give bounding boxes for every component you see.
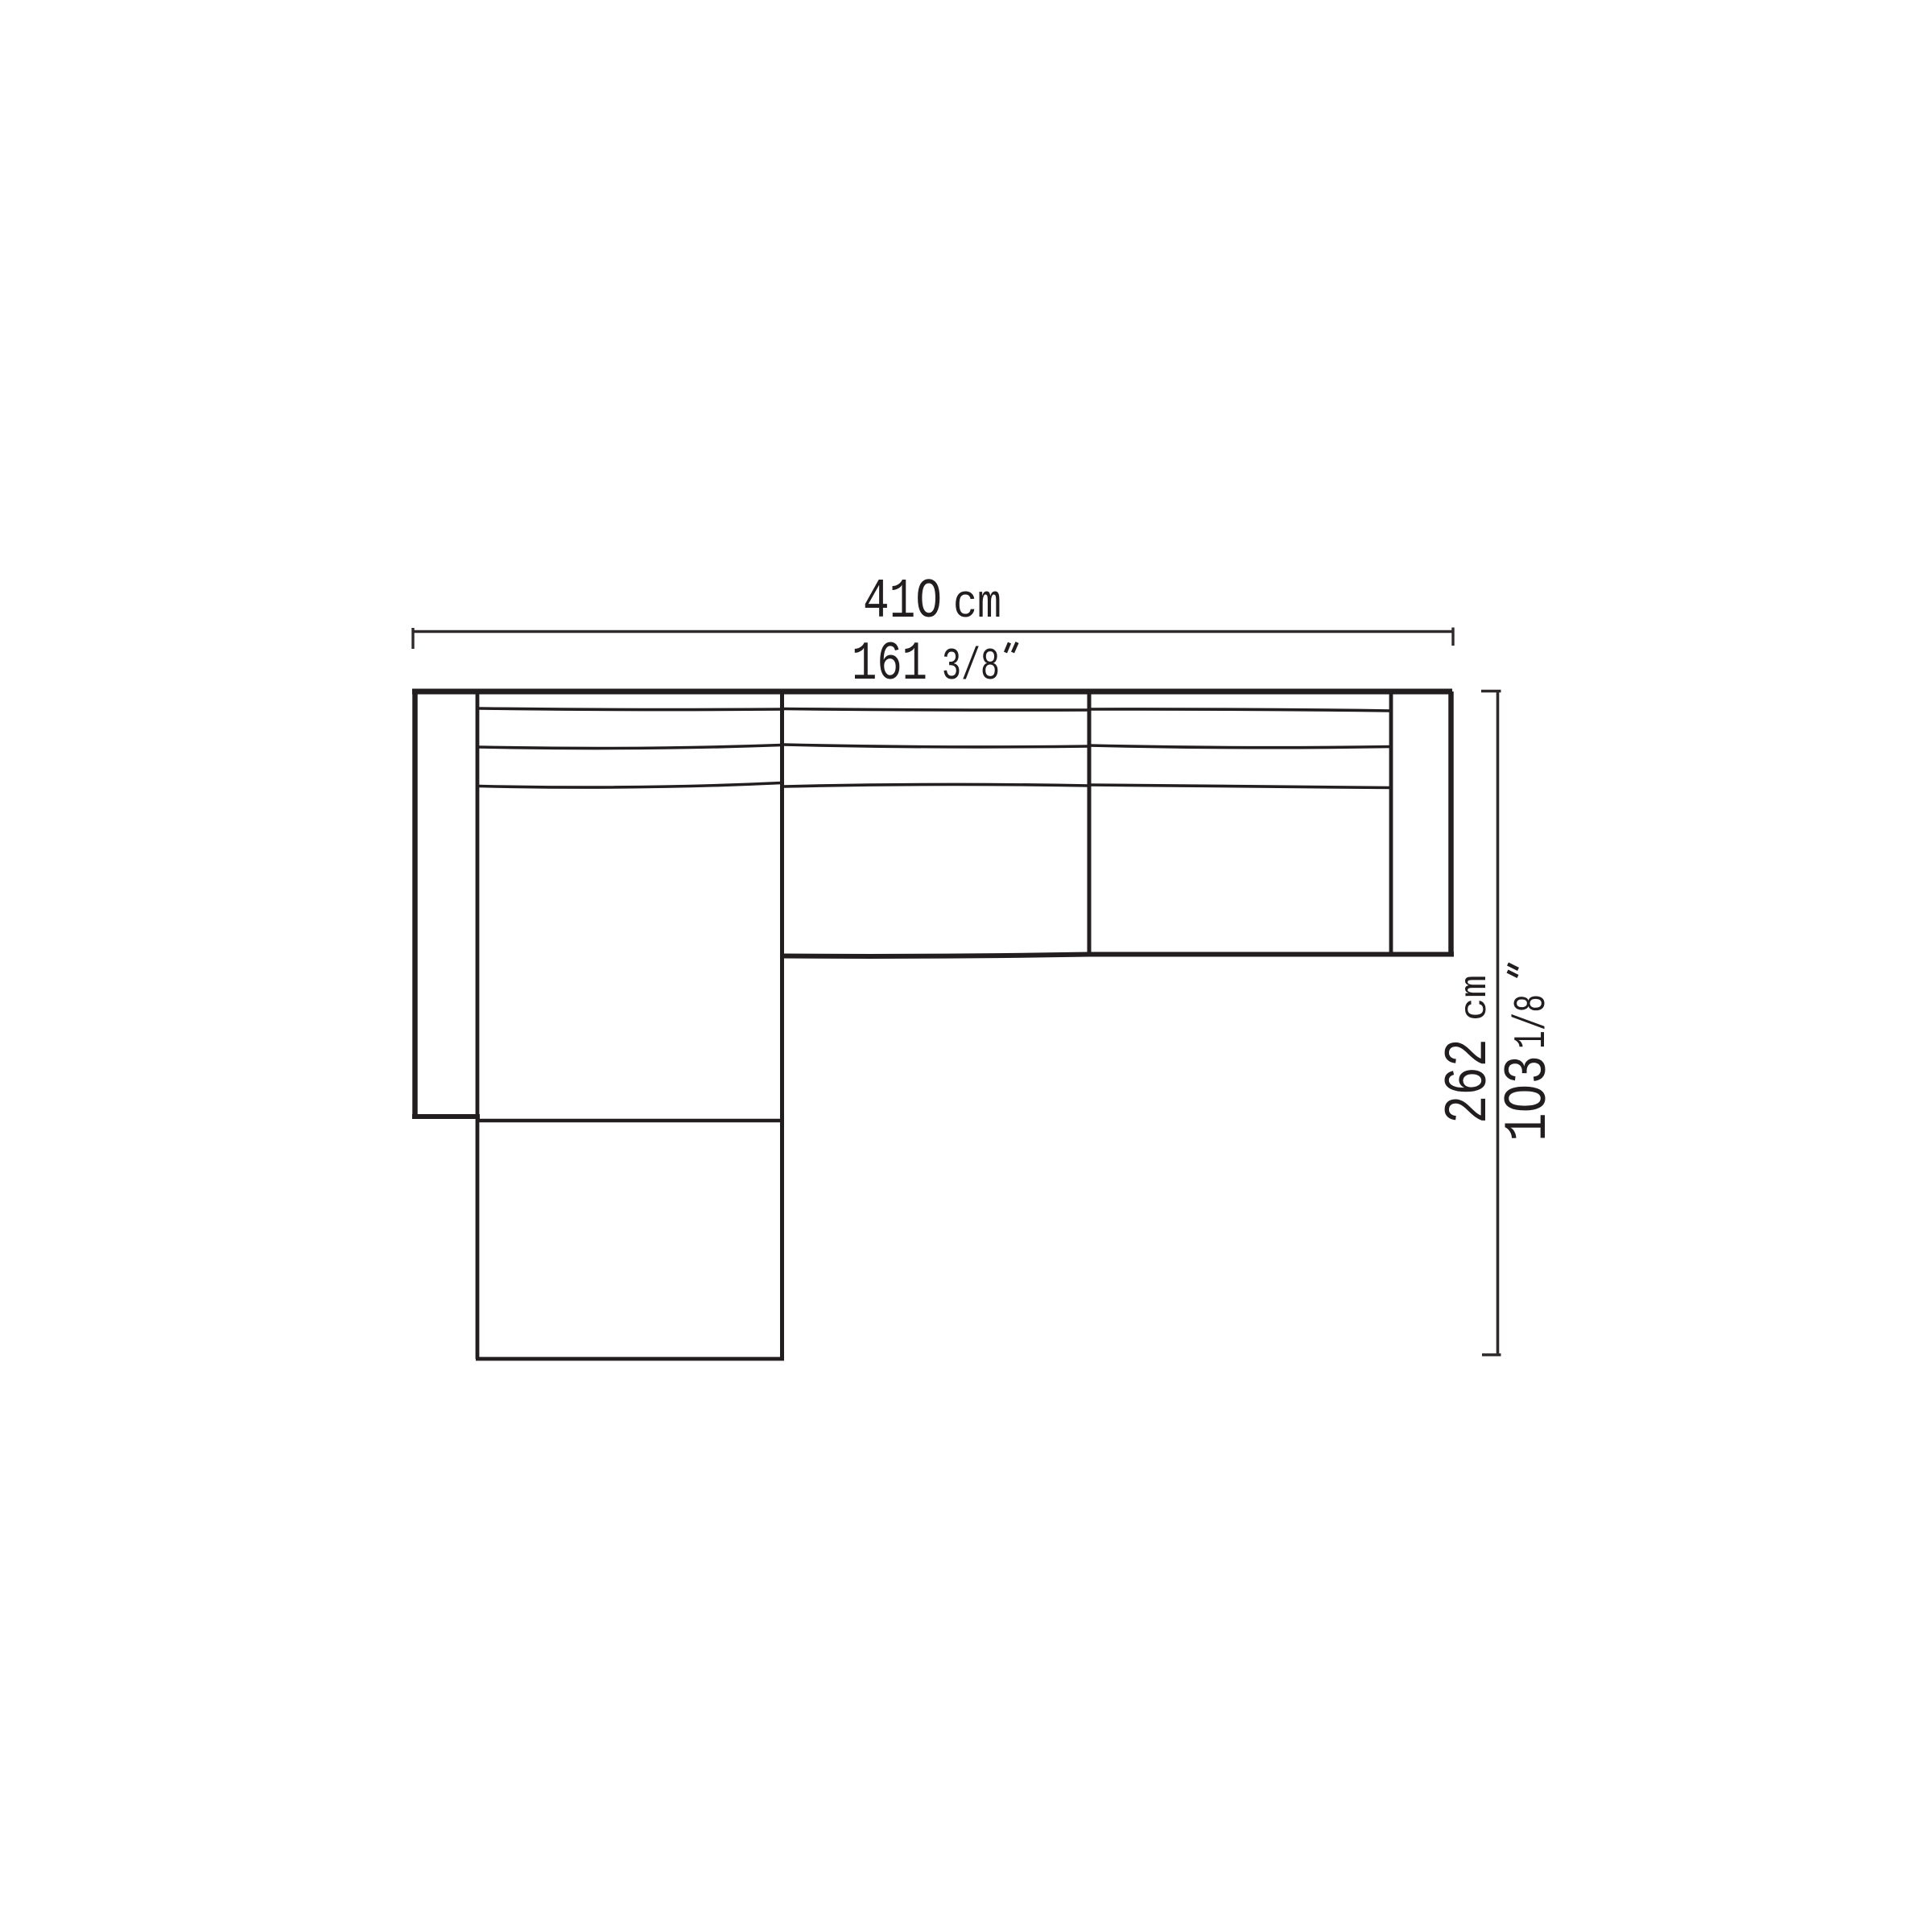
svg-text:cm: cm xyxy=(953,579,1001,631)
svg-text:262: 262 xyxy=(1435,1038,1504,1124)
svg-text:1O3: 1O3 xyxy=(1495,1055,1563,1141)
svg-text:3/8: 3/8 xyxy=(942,641,1000,692)
svg-text:41O: 41O xyxy=(863,571,942,634)
svg-text:161: 161 xyxy=(852,634,927,696)
svg-text:cm: cm xyxy=(1455,975,1496,1021)
svg-text:1/8: 1/8 xyxy=(1506,994,1558,1049)
